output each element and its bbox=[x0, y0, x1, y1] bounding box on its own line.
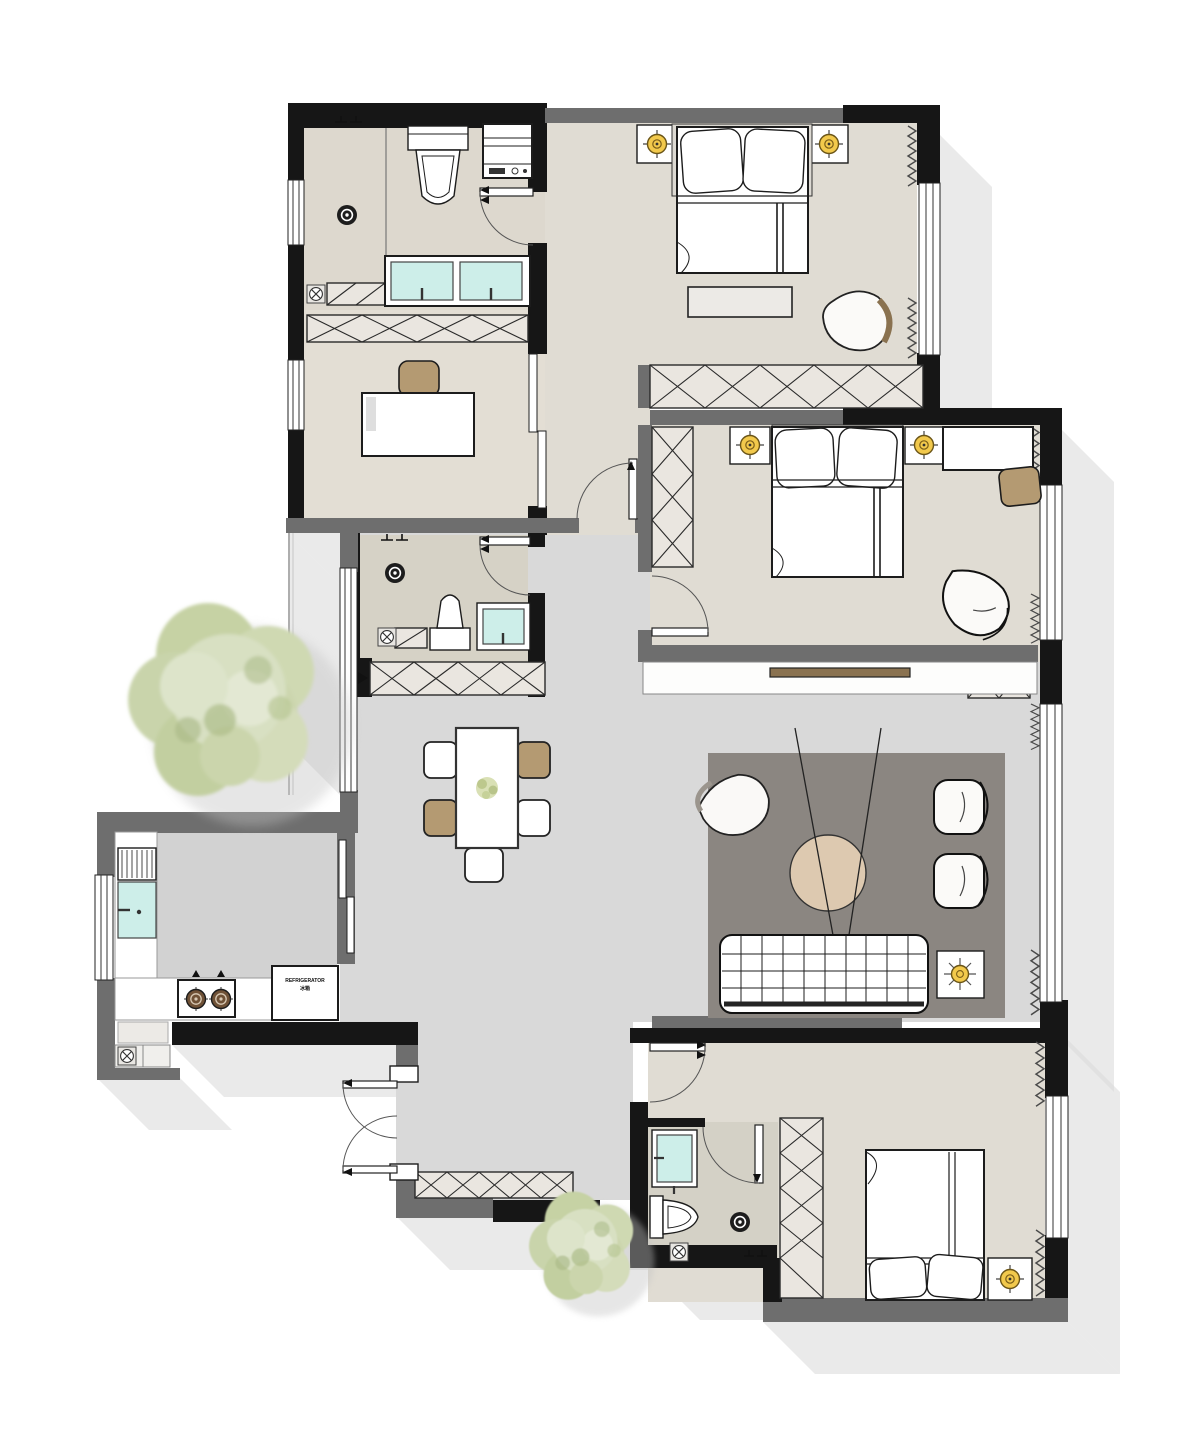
window-bedroom-middle bbox=[1040, 485, 1062, 640]
window-bathroom-1 bbox=[288, 180, 304, 245]
lounge-chair bbox=[934, 854, 988, 908]
lounge-chair bbox=[934, 780, 988, 834]
desk-chair bbox=[998, 466, 1042, 507]
wardrobe-study bbox=[307, 315, 528, 342]
window-study bbox=[288, 360, 304, 430]
wardrobe-bedroom-middle bbox=[652, 427, 693, 567]
shower bbox=[652, 1130, 697, 1194]
dining-chair bbox=[465, 848, 503, 882]
dining-chair bbox=[517, 800, 550, 836]
floor-kitchen bbox=[157, 832, 337, 978]
vanity-double-sink bbox=[385, 256, 530, 306]
pillow bbox=[869, 1256, 928, 1300]
utility-shelf bbox=[118, 1022, 168, 1043]
wardrobe-bedroom-master bbox=[650, 365, 923, 408]
dining-chair bbox=[424, 800, 457, 836]
refrigerator: REFRIGERATOR 冰箱 bbox=[272, 966, 338, 1020]
fridge-label-line2: 冰箱 bbox=[300, 985, 310, 992]
window-living bbox=[1040, 704, 1062, 1002]
desk-chair bbox=[399, 361, 439, 396]
fridge-label-line1: REFRIGERATOR bbox=[285, 978, 325, 984]
cabinet-bath2 bbox=[370, 662, 545, 695]
pillow bbox=[742, 128, 805, 193]
washing-machine bbox=[483, 124, 532, 178]
desk bbox=[362, 393, 474, 456]
bed-double bbox=[772, 425, 903, 577]
shoe-cabinet-entry bbox=[415, 1172, 573, 1198]
floor-plan-canvas: REFRIGERATOR 冰箱 bbox=[0, 0, 1200, 1453]
window-kitchen bbox=[95, 875, 113, 980]
living-room bbox=[691, 728, 1005, 1018]
floor-drain-icon bbox=[337, 205, 357, 225]
cabinet-bath1-small bbox=[327, 283, 385, 305]
table-plant bbox=[476, 777, 498, 799]
television bbox=[770, 668, 910, 677]
bed-double bbox=[672, 124, 812, 273]
bed-bench bbox=[688, 287, 792, 317]
window-bedroom-suite bbox=[1046, 1096, 1068, 1238]
desk bbox=[943, 427, 1033, 470]
cabinet-bath2-small bbox=[395, 628, 427, 648]
bed-double bbox=[866, 1150, 984, 1300]
floor-plan: REFRIGERATOR 冰箱 bbox=[0, 0, 1200, 1453]
pillow bbox=[926, 1254, 983, 1301]
drain-box-icon bbox=[307, 285, 325, 303]
sofa bbox=[720, 935, 928, 1013]
pillow bbox=[775, 428, 836, 489]
wardrobe-bedroom-suite bbox=[780, 1118, 823, 1298]
utility-cabinet bbox=[143, 1045, 170, 1067]
sink bbox=[477, 603, 530, 650]
dining-chair bbox=[517, 742, 550, 778]
kitchen-sink bbox=[118, 848, 156, 938]
dining-chair bbox=[424, 742, 457, 778]
pillow bbox=[680, 128, 744, 194]
window-bedroom-master bbox=[919, 183, 940, 355]
tv-console bbox=[643, 662, 1037, 694]
